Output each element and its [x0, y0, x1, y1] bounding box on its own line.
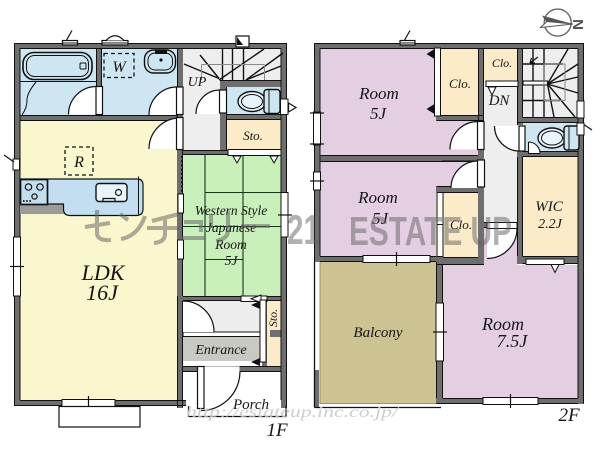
svg-text:Room: Room: [358, 84, 399, 103]
svg-text:2F: 2F: [558, 405, 580, 426]
svg-text:DN: DN: [488, 93, 511, 109]
svg-text:N: N: [569, 19, 586, 30]
svg-text:Sto.: Sto.: [243, 128, 263, 143]
svg-text:Clo.: Clo.: [492, 56, 512, 70]
svg-text:Entrance: Entrance: [194, 343, 246, 358]
svg-text:21: 21: [287, 206, 320, 253]
svg-text:2.2J: 2.2J: [538, 217, 563, 232]
svg-text:R: R: [73, 154, 84, 171]
svg-text:W: W: [112, 59, 127, 76]
svg-text:Sto.: Sto.: [266, 309, 280, 327]
svg-text:Balcony: Balcony: [353, 325, 402, 341]
svg-text:7.5J: 7.5J: [497, 331, 529, 351]
svg-text:Room: Room: [357, 188, 398, 207]
svg-text:5J: 5J: [370, 104, 388, 123]
svg-text:Western Style: Western Style: [195, 203, 268, 218]
svg-text:5J: 5J: [225, 253, 239, 268]
svg-text:UP: UP: [188, 75, 207, 90]
svg-text:1F: 1F: [266, 420, 288, 441]
svg-text:http://estateup.inc.co.jp/: http://estateup.inc.co.jp/: [186, 404, 400, 421]
svg-text:ESTATE UP: ESTATE UP: [349, 208, 512, 254]
svg-text:16J: 16J: [86, 280, 119, 305]
svg-text:Clo.: Clo.: [449, 76, 471, 91]
svg-text:WIC: WIC: [535, 199, 563, 215]
